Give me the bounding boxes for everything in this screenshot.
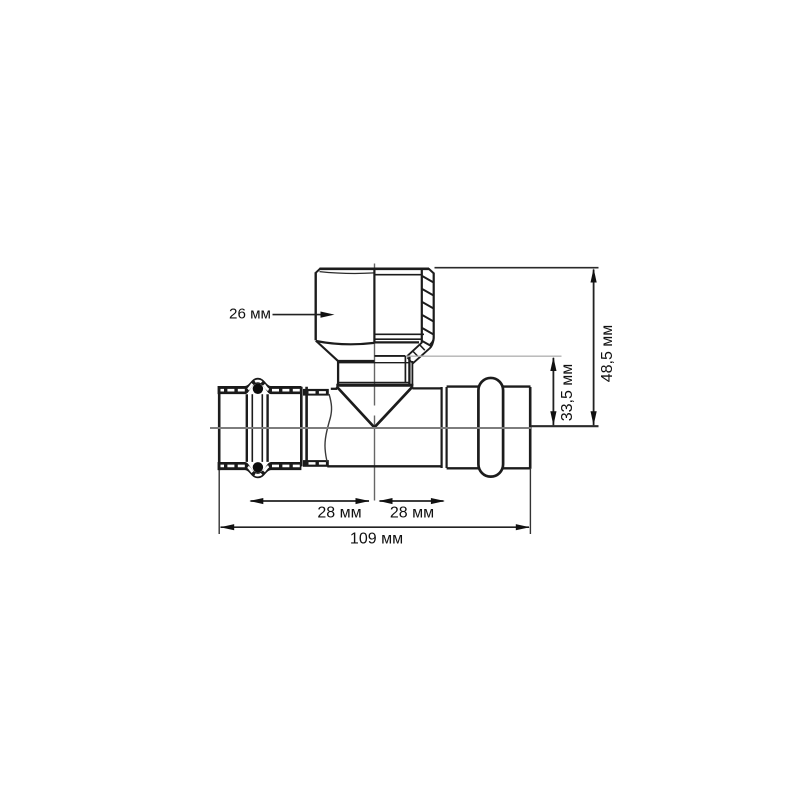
svg-text:26 мм: 26 мм xyxy=(229,305,271,322)
svg-text:28 мм: 28 мм xyxy=(390,504,434,521)
svg-text:33,5 мм: 33,5 мм xyxy=(559,364,576,422)
svg-text:28 мм: 28 мм xyxy=(317,504,361,521)
svg-text:48,5 мм: 48,5 мм xyxy=(599,325,616,383)
svg-text:109 мм: 109 мм xyxy=(350,531,403,548)
